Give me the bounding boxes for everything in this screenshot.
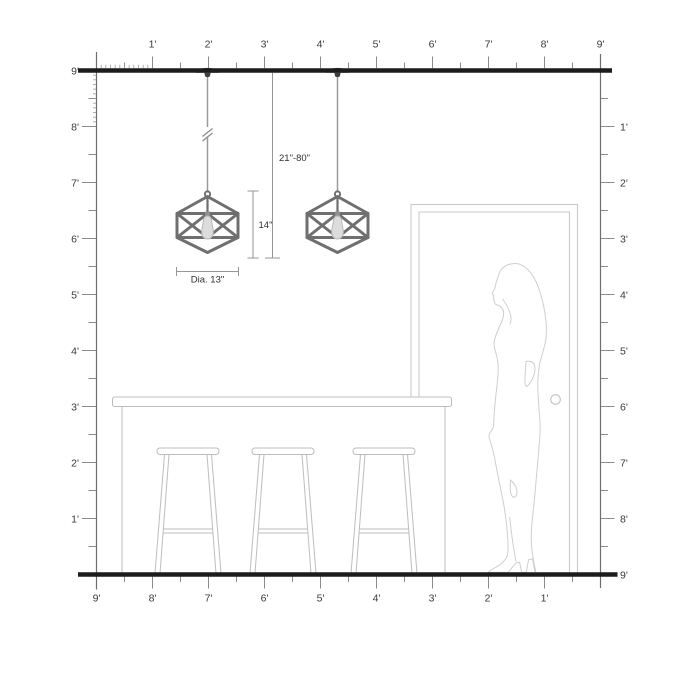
ruler-bottom: 9'8'7'6'5'4'3'2'1'	[93, 575, 573, 605]
counter-top	[113, 397, 452, 407]
ruler-left: 9'8'7'6'5'4'3'2'1'	[71, 65, 96, 546]
ruler-label: 9'	[620, 569, 628, 581]
ruler-label: 6'	[620, 401, 628, 413]
ruler-label: 3'	[261, 39, 269, 51]
person-silhouette	[488, 264, 546, 573]
ruler-label: 2'	[620, 177, 628, 189]
ruler-label: 8'	[149, 593, 157, 605]
ruler-label: 3'	[71, 401, 79, 413]
ruler-label: 7'	[71, 177, 79, 189]
ruler-label: 9'	[597, 39, 605, 51]
ruler-label: 9'	[93, 593, 101, 605]
ruler-label: 2'	[205, 39, 213, 51]
pendant-light-2	[307, 68, 368, 253]
ruler-label: 9'	[71, 65, 79, 77]
ruler-label: 5'	[373, 39, 381, 51]
door-knob	[551, 395, 561, 405]
ruler-label: 1'	[71, 513, 79, 525]
ruler-label: 4'	[373, 593, 381, 605]
ruler-label: 4'	[620, 289, 628, 301]
ruler-label: 8'	[71, 121, 79, 133]
ruler-label: 1'	[541, 593, 549, 605]
ruler-label: 1'	[149, 39, 157, 51]
ruler-label: 7'	[205, 593, 213, 605]
ruler-label: 7'	[620, 457, 628, 469]
ruler-label: 6'	[71, 233, 79, 245]
ruler-label: 8'	[541, 39, 549, 51]
dimension-diagram: 1'2'3'4'5'6'7'8'9' 9'8'7'6'5'4'3'2'1' 1'…	[0, 0, 700, 700]
ruler-label: 7'	[485, 39, 493, 51]
counter-body	[122, 407, 445, 575]
ruler-right: 1'2'3'4'5'6'7'8'9'	[601, 99, 628, 582]
ruler-label: 2'	[485, 593, 493, 605]
ruler-label: 2'	[71, 457, 79, 469]
fixture-height-label: 14"	[259, 220, 273, 231]
ruler-top: 1'2'3'4'5'6'7'8'9'	[101, 39, 604, 69]
hang-height-label: 21"-80"	[279, 153, 310, 164]
pendant-light-1	[177, 68, 238, 253]
ruler-label: 1'	[620, 121, 628, 133]
dimension-diameter: Dia. 13"	[177, 267, 239, 286]
ruler-label: 5'	[620, 345, 628, 357]
ruler-label: 4'	[71, 345, 79, 357]
ruler-label: 6'	[261, 593, 269, 605]
kitchen-island	[113, 397, 452, 574]
ruler-label: 3'	[429, 593, 437, 605]
ruler-label: 3'	[620, 233, 628, 245]
ruler-label: 5'	[71, 289, 79, 301]
ruler-label: 8'	[620, 513, 628, 525]
dimension-fixture-height: 14"	[248, 191, 273, 258]
ruler-label: 5'	[317, 593, 325, 605]
diameter-label: Dia. 13"	[191, 275, 224, 286]
ruler-label: 6'	[429, 39, 437, 51]
ruler-label: 4'	[317, 39, 325, 51]
